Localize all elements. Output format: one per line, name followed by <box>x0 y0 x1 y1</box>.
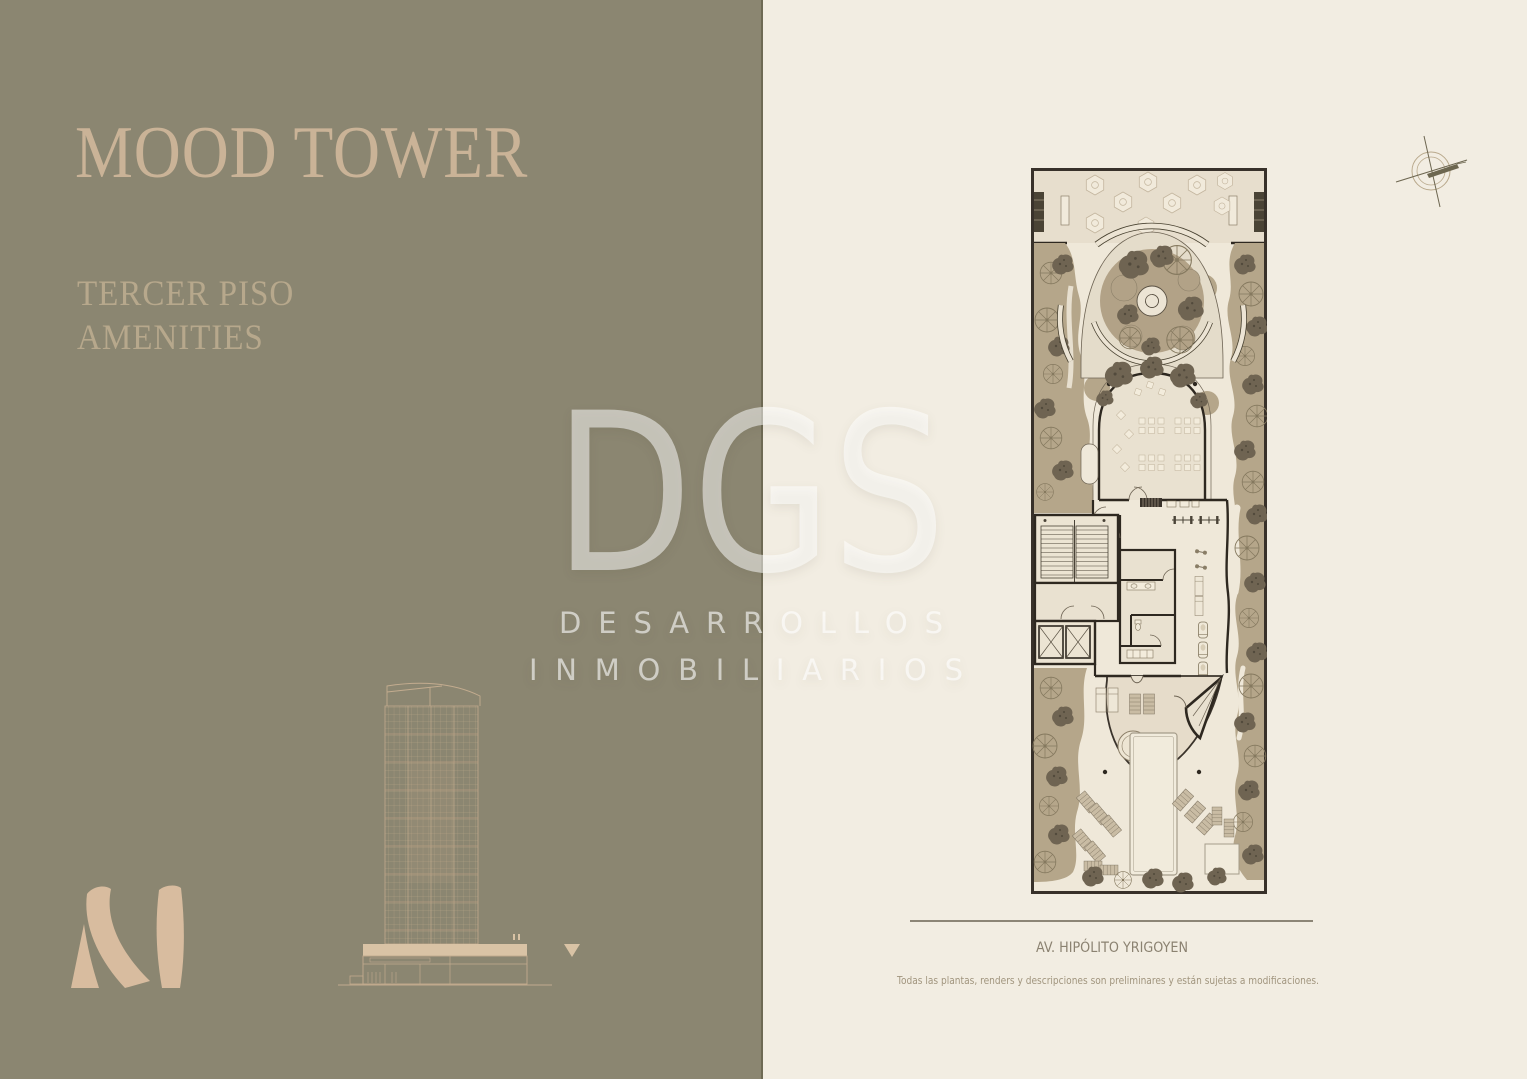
subtitle-line-1: TERCER PISO <box>77 271 294 315</box>
tower-podium <box>338 944 552 985</box>
tower-crown <box>387 683 480 706</box>
disclaimer-text: Todas las plantas, renders y descripcion… <box>896 974 1319 987</box>
page-subtitle: TERCER PISO AMENITIES <box>77 271 294 359</box>
subtitle-line-2: AMENITIES <box>77 315 294 359</box>
tower-elevation-illustration <box>330 672 590 992</box>
tower-facade <box>385 706 520 944</box>
marker-triangle-icon <box>564 944 580 957</box>
plan-restrooms <box>1120 550 1175 663</box>
plan-caption: AV. HIPÓLITO YRIGOYEN Todas las plantas,… <box>850 903 1330 998</box>
plan-stairs <box>1035 515 1118 583</box>
m-monogram-logo <box>66 884 191 992</box>
page-title: MOOD TOWER <box>75 116 528 190</box>
street-label: AV. HIPÓLITO YRIGOYEN <box>1036 938 1188 956</box>
panel-divider-line <box>761 0 763 1079</box>
compass-icon <box>1393 133 1471 211</box>
pool <box>1130 733 1177 875</box>
floor-plan <box>1031 168 1267 894</box>
